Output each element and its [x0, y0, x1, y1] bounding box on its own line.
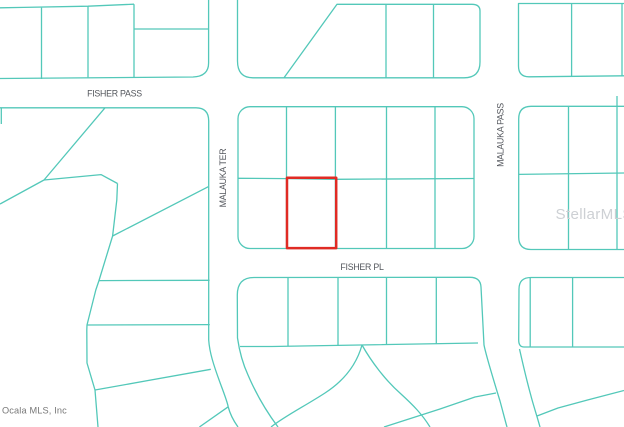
svg-text:FISHER PASS: FISHER PASS — [87, 89, 142, 99]
svg-text:MALAUKA PASS: MALAUKA PASS — [495, 103, 505, 167]
svg-text:StellarMLS: StellarMLS — [556, 206, 624, 223]
svg-text:MALAUKA TER: MALAUKA TER — [218, 149, 228, 208]
svg-text:FISHER PL: FISHER PL — [340, 262, 384, 272]
svg-text:Ocala MLS, Inc: Ocala MLS, Inc — [2, 405, 67, 415]
